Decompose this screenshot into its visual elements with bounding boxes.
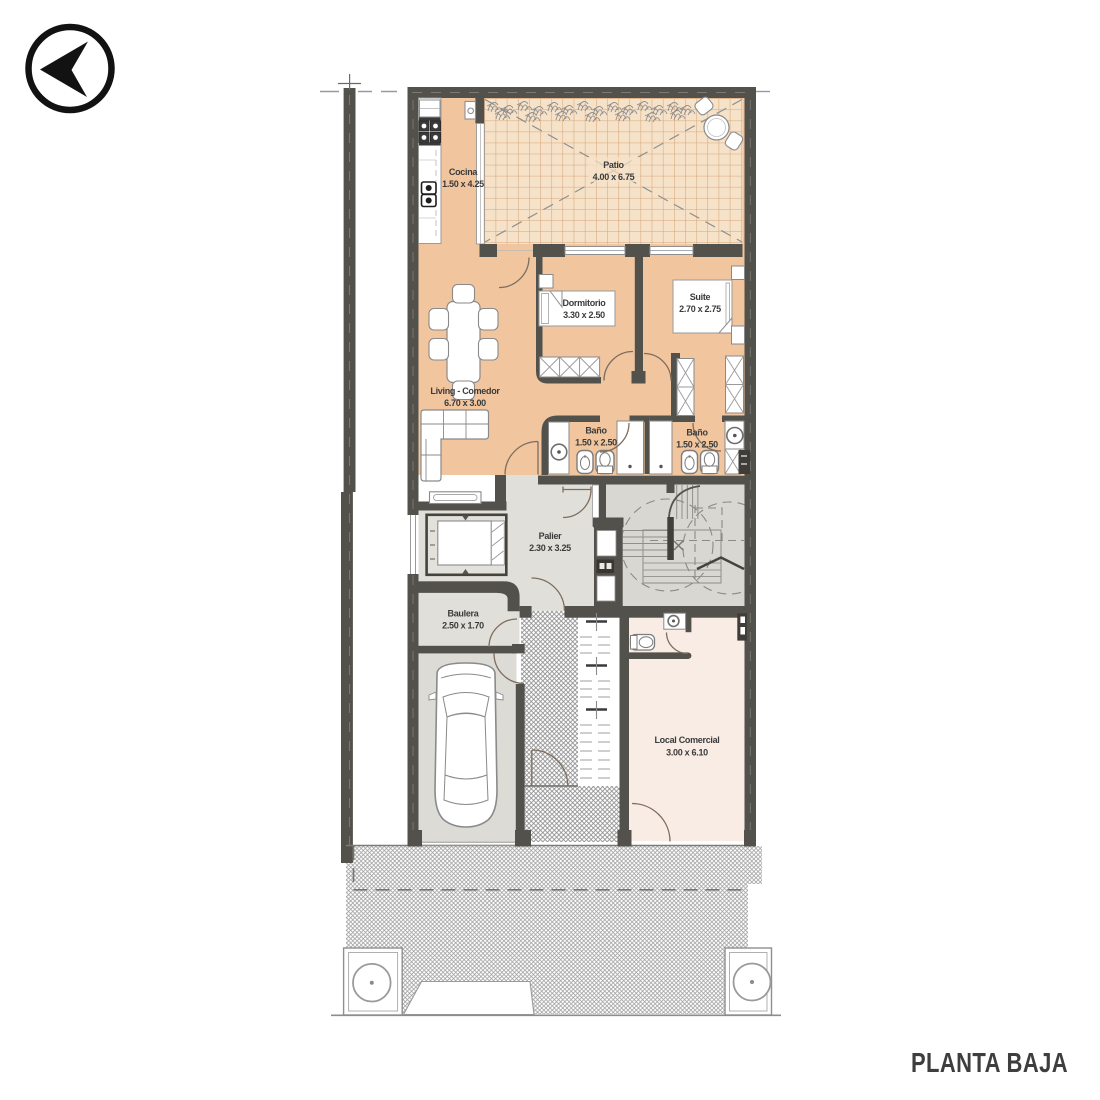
svg-text:3.00 x 6.10: 3.00 x 6.10 xyxy=(666,748,708,758)
svg-text:Cocina: Cocina xyxy=(449,167,479,177)
svg-text:Living - Comedor: Living - Comedor xyxy=(430,386,500,396)
svg-text:1.50 x 2.50: 1.50 x 2.50 xyxy=(676,440,718,450)
svg-text:2.70 x 2.75: 2.70 x 2.75 xyxy=(679,304,721,314)
svg-text:Patio: Patio xyxy=(603,160,624,170)
svg-text:Palier: Palier xyxy=(539,531,563,541)
svg-text:Baño: Baño xyxy=(686,428,708,438)
svg-text:4.00 x 6.75: 4.00 x 6.75 xyxy=(593,172,635,182)
svg-text:Baulera: Baulera xyxy=(448,609,480,619)
svg-text:Baño: Baño xyxy=(585,426,607,436)
svg-text:PLANTA BAJA: PLANTA BAJA xyxy=(911,1047,1068,1078)
svg-text:1.50 x 2.50: 1.50 x 2.50 xyxy=(575,438,617,448)
svg-text:Local Comercial: Local Comercial xyxy=(654,735,719,745)
svg-text:Dormitorio: Dormitorio xyxy=(563,298,607,308)
svg-text:2.50 x 1.70: 2.50 x 1.70 xyxy=(442,621,484,631)
svg-text:6.70 x 3.00: 6.70 x 3.00 xyxy=(444,398,486,408)
svg-text:1.50 x 4.25: 1.50 x 4.25 xyxy=(442,179,484,189)
svg-text:2.30 x 3.25: 2.30 x 3.25 xyxy=(529,543,571,553)
svg-text:Suite: Suite xyxy=(690,292,711,302)
svg-text:3.30 x 2.50: 3.30 x 2.50 xyxy=(563,310,605,320)
